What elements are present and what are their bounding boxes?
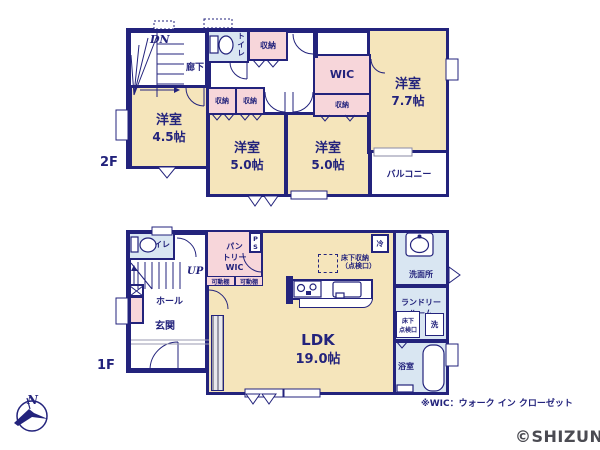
room-2f-50b-name: 洋室 — [315, 137, 341, 156]
wic-note: ※WIC：ウォーク イン クローゼット — [421, 399, 573, 409]
marker-2f-a — [248, 196, 262, 206]
closet-2f-b-label: 収納 — [335, 100, 349, 110]
fridge-box: 冷 — [371, 234, 389, 253]
compass-north-label: N — [27, 394, 38, 408]
watermark: ©SHIZUNAV — [515, 428, 600, 446]
floorplan-canvas: 洋室 4.5帖 洋室 5.0帖 洋室 5.0帖 洋室 7.7帖 バルコニー 収納… — [0, 0, 600, 450]
room-2f-77-name: 洋室 — [395, 73, 421, 92]
room-2f-77: 洋室 7.7帖 — [367, 28, 449, 154]
closet-2f-b: 収納 — [313, 93, 371, 117]
toilet-2f-label: トイレ — [236, 32, 245, 58]
window-2f-top-b — [204, 19, 232, 28]
ldk-label: LDK 19.0帖 — [283, 331, 353, 368]
closet-2f-a-label: 収納 — [260, 40, 276, 51]
floor2-label: 2F — [100, 156, 118, 171]
shelf-right: 可動棚 — [235, 276, 263, 286]
closet-2f-d-label: 収納 — [243, 96, 257, 106]
room-2f-45-size: 4.5帖 — [152, 128, 185, 145]
closet-2f-d: 収納 — [235, 87, 265, 115]
underfloor-storage-box — [318, 254, 338, 273]
washroom-label: 洗面所 — [409, 269, 433, 280]
room-2f-50a: 洋室 5.0帖 — [207, 112, 287, 197]
pipe-space: PS — [249, 232, 262, 253]
stairs-1f-up-label: UP — [187, 266, 203, 278]
marker-2f-b — [264, 196, 278, 206]
underfloor-storage-label: 床下収納 （点検口） — [341, 254, 376, 270]
kitchen-counter-front — [299, 298, 373, 308]
room-2f-50a-size: 5.0帖 — [230, 156, 263, 173]
ldk-name: LDK — [301, 331, 335, 349]
underfloor-storage-label-2: （点検口） — [341, 262, 376, 270]
stairs-2f-dn-label: DN — [150, 34, 170, 47]
washroom: 洗面所 — [393, 230, 449, 287]
pantry-label-2: トリー — [223, 252, 247, 263]
marker-1f-a — [246, 394, 260, 404]
room-2f-50a-name: 洋室 — [234, 137, 260, 156]
balcony: バルコニー — [369, 150, 449, 197]
room-2f-45-name: 洋室 — [156, 109, 182, 128]
pantry-label-3: WIC — [226, 263, 244, 272]
underfloor-inspect-label-1: 床下 — [402, 316, 414, 325]
fridge-label: 冷 — [377, 239, 384, 249]
room-2f-50b: 洋室 5.0帖 — [285, 112, 371, 197]
pantry-label-1: パン — [226, 241, 242, 252]
underfloor-inspect-box: 床下 点検口 — [396, 311, 420, 338]
pipe-space-label: PS — [252, 235, 260, 251]
marker-1f-b — [262, 394, 276, 404]
laundry-label-1: ランドリー — [401, 297, 441, 308]
kitchen-counter — [291, 279, 373, 300]
room-2f-77-size: 7.7帖 — [391, 92, 424, 109]
balcony-label: バルコニー — [387, 167, 432, 180]
hall-label: ホール — [156, 297, 183, 307]
washer-label: 洗 — [431, 319, 439, 330]
bathroom-label: 浴室 — [398, 362, 414, 371]
wic-2f-label: WIC — [330, 68, 354, 81]
room-2f-50b-size: 5.0帖 — [311, 156, 344, 173]
hallway-2f-label: 廊下 — [186, 63, 204, 73]
toilet-1f-label: トイレ — [146, 240, 170, 249]
shelf-left-label: 可動棚 — [211, 277, 229, 286]
closet-2f-a: 収納 — [248, 30, 288, 61]
room-2f-45: 洋室 4.5帖 — [129, 85, 209, 169]
closet-2f-c-label: 収納 — [215, 96, 229, 106]
underfloor-storage-label-1: 床下収納 — [341, 254, 369, 262]
shoe-cabinet — [129, 296, 144, 324]
floor1-label: 1F — [97, 359, 115, 374]
shelf-left: 可動棚 — [206, 276, 235, 286]
door-marker-washroom — [449, 267, 460, 283]
underfloor-inspect-label-2: 点検口 — [399, 325, 417, 334]
wic-2f: WIC — [313, 54, 371, 95]
shelf-right-label: 可動棚 — [240, 277, 258, 286]
closet-2f-c: 収納 — [207, 87, 237, 115]
entrance-label: 玄関 — [155, 321, 175, 333]
washer-box: 洗 — [425, 313, 444, 336]
ldk-size: 19.0帖 — [295, 352, 340, 367]
entrance-step-strip — [211, 315, 224, 391]
